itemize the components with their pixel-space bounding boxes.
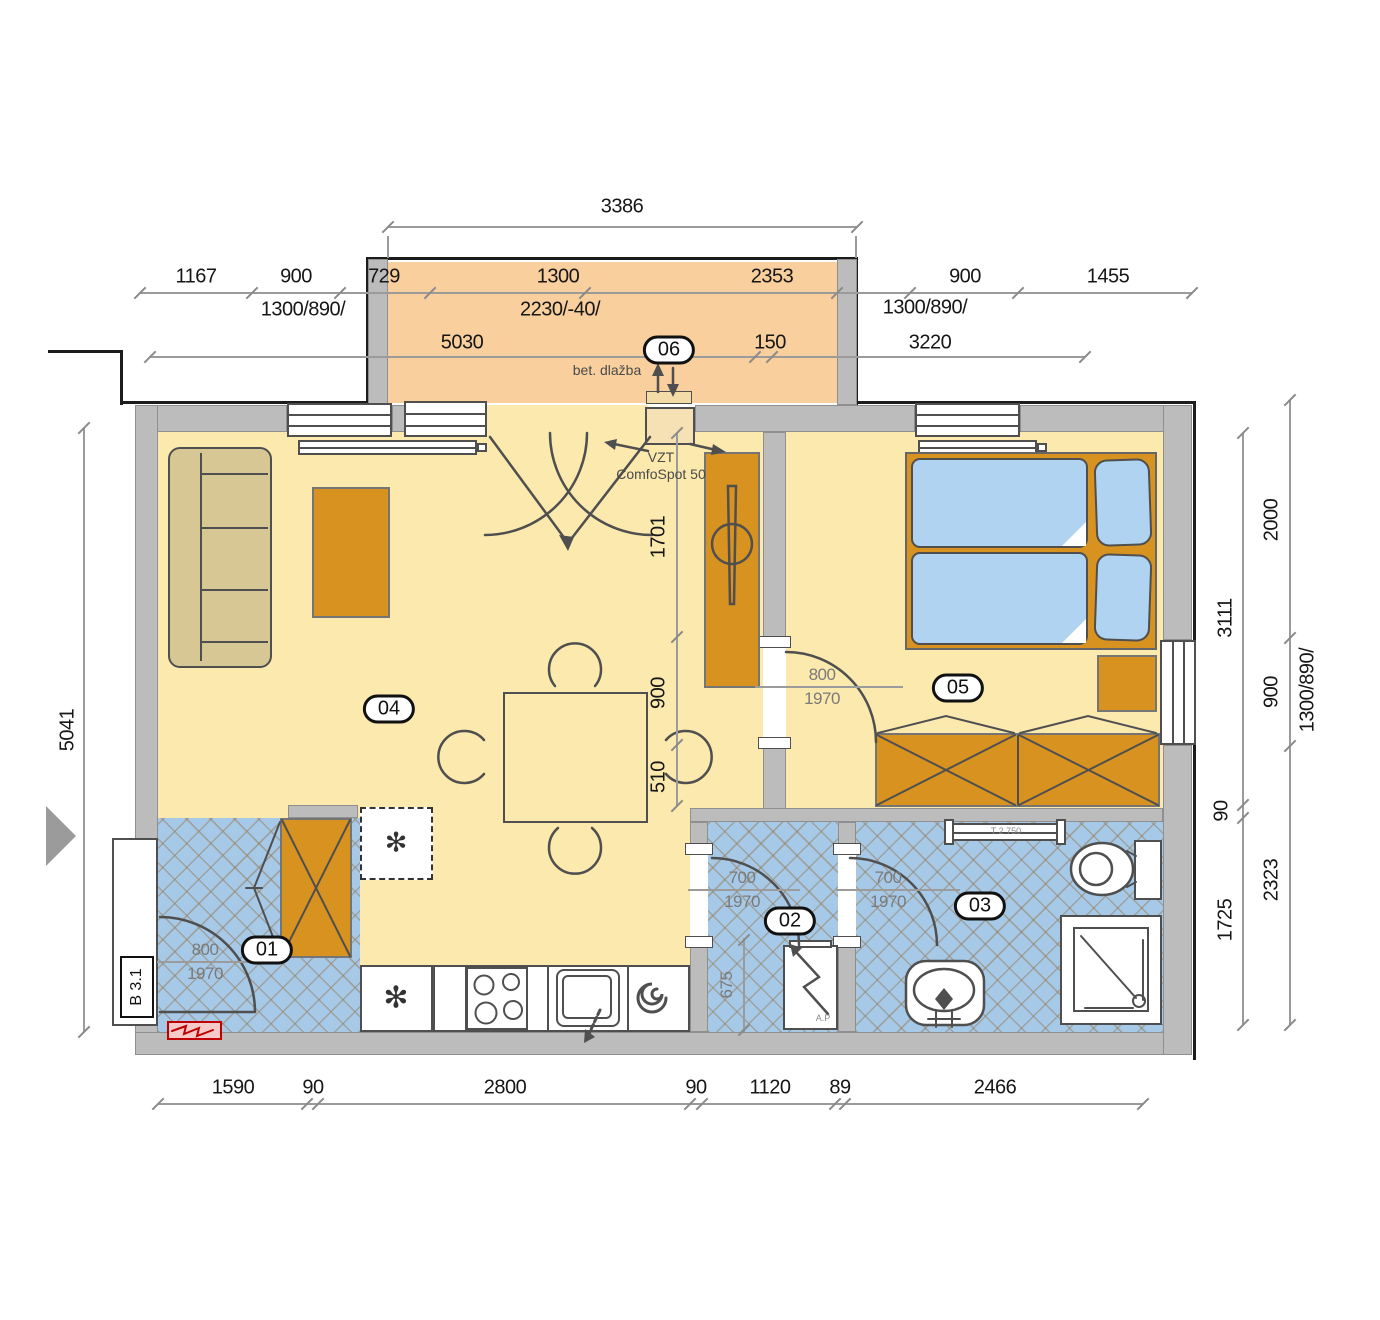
dim-bottom-0: 1590 (212, 1077, 255, 1100)
room-badge-balcony: 06 (643, 336, 695, 365)
lineart-layer (0, 0, 1380, 1320)
dim-row2-1: 900 (280, 266, 312, 289)
dining-chair-top (549, 643, 601, 686)
balcony-door-arrow (559, 535, 574, 551)
dim-row3-0: 5030 (441, 332, 484, 355)
sink-faucet (588, 1010, 600, 1036)
dim-bottom-5: 89 (829, 1077, 850, 1100)
dim-pointer-bedroom-door (755, 686, 903, 688)
spec-balcony-door: 2230/-40/ (520, 299, 600, 322)
dim-row2-3: 1300 (537, 266, 580, 289)
vzt-label-line1: VZT (648, 449, 674, 465)
floor-plan: ✻ ✻ (0, 0, 1380, 1320)
burner-4 (504, 1001, 522, 1019)
burner-2 (503, 974, 519, 990)
dim-bottom-3: 90 (685, 1077, 706, 1100)
dim-row2-5: 900 (949, 266, 981, 289)
dim-right-inner-1: 90 (1211, 800, 1234, 821)
dim-line-right-inner (1242, 433, 1244, 1025)
bath-door-height: 1970 (870, 892, 906, 912)
balcony-door-arc-left (485, 433, 587, 535)
dim-row2-2: 729 (368, 266, 400, 289)
dim-living-2: 510 (648, 761, 671, 793)
dim-pointer-wc-door (688, 889, 800, 891)
dim-line-top1 (388, 226, 857, 228)
dim-left-overall: 5041 (57, 709, 80, 752)
dim-bottom-1: 90 (302, 1077, 323, 1100)
bath-door-width: 700 (875, 868, 902, 888)
dim-bottom-6: 2466 (974, 1077, 1017, 1100)
dim-line-right-outer (1289, 400, 1291, 1025)
spec-window-east: 1300/890/ (1297, 648, 1320, 732)
room-badge-entry: 01 (241, 936, 293, 965)
bedroom-wardrobe-x (877, 735, 1158, 805)
wc-door-height: 1970 (724, 892, 760, 912)
room-badge-bathroom: 03 (954, 892, 1006, 921)
entry-wardrobe-x (282, 820, 350, 956)
dining-chair-right (666, 731, 712, 783)
dining-chair-bottom (549, 828, 601, 874)
shower-drain (1133, 995, 1145, 1007)
dim-row2-6: 1455 (1087, 266, 1130, 289)
dim-pointer-bath-door (836, 889, 960, 891)
dim-right-outer-2: 2323 (1261, 859, 1284, 902)
bedroom-door-height: 1970 (804, 689, 840, 709)
dim-bottom-4: 1120 (749, 1077, 790, 1100)
dim-right-inner-2: 1725 (1215, 899, 1238, 942)
entry-door-width: 800 (192, 940, 219, 960)
dining-chair-left (438, 731, 484, 783)
dim-line-top3 (150, 356, 1085, 358)
entry-ref-label: B 3.1 (128, 968, 146, 1005)
dim-living-0: 1701 (648, 516, 671, 559)
burner-1 (475, 976, 494, 995)
room-badge-wc: 02 (764, 907, 816, 936)
room-badge-living: 04 (363, 695, 415, 724)
burner-3 (476, 1003, 497, 1024)
dim-row2-0: 1167 (175, 266, 216, 289)
heater-ref-label: A.P (816, 1013, 831, 1023)
dim-right-outer-1: 900 (1261, 676, 1284, 708)
dim-line-left (83, 428, 85, 1032)
dim-top-overall: 3386 (601, 196, 644, 219)
dim-row3-1: 150 (754, 332, 786, 355)
dim-line-top2 (140, 292, 1192, 294)
dim-line-living-vertical (676, 433, 678, 806)
dim-row2-4: 2353 (751, 266, 794, 289)
tv-screen (728, 486, 736, 604)
towel-radiator-label: T 2 750 (991, 826, 1021, 836)
dishwasher-spiral-icon (638, 984, 666, 1012)
spec-window-right: 1300/890/ (883, 297, 967, 320)
bedroom-wardrobe-peaks (878, 716, 1156, 733)
dim-ext-balcony-right (855, 236, 857, 258)
dim-row3-2: 3220 (909, 332, 952, 355)
tv-circle (712, 524, 752, 564)
dim-living-1: 900 (648, 677, 671, 709)
dim-line-675 (743, 938, 745, 1032)
dim-bottom-2: 2800 (484, 1077, 527, 1100)
bedroom-door-width: 800 (809, 665, 836, 685)
dim-ext-balcony-left (387, 236, 389, 258)
dim-wc-width: 675 (717, 972, 737, 999)
spec-window-left: 1300/890/ (261, 299, 345, 322)
dim-right-outer-0: 2000 (1261, 499, 1284, 542)
vzt-label-line2: ComfoSpot 50 (616, 466, 706, 482)
heater-lightning-icon (796, 952, 828, 1014)
room-badge-bedroom: 05 (932, 674, 984, 703)
entry-door-height: 1970 (187, 964, 223, 984)
doormat-pattern (172, 1026, 213, 1036)
dim-right-inner-0: 3111 (1215, 598, 1238, 638)
wc-door-width: 700 (729, 868, 756, 888)
balcony-floor-label: bet. dlažba (573, 362, 642, 378)
